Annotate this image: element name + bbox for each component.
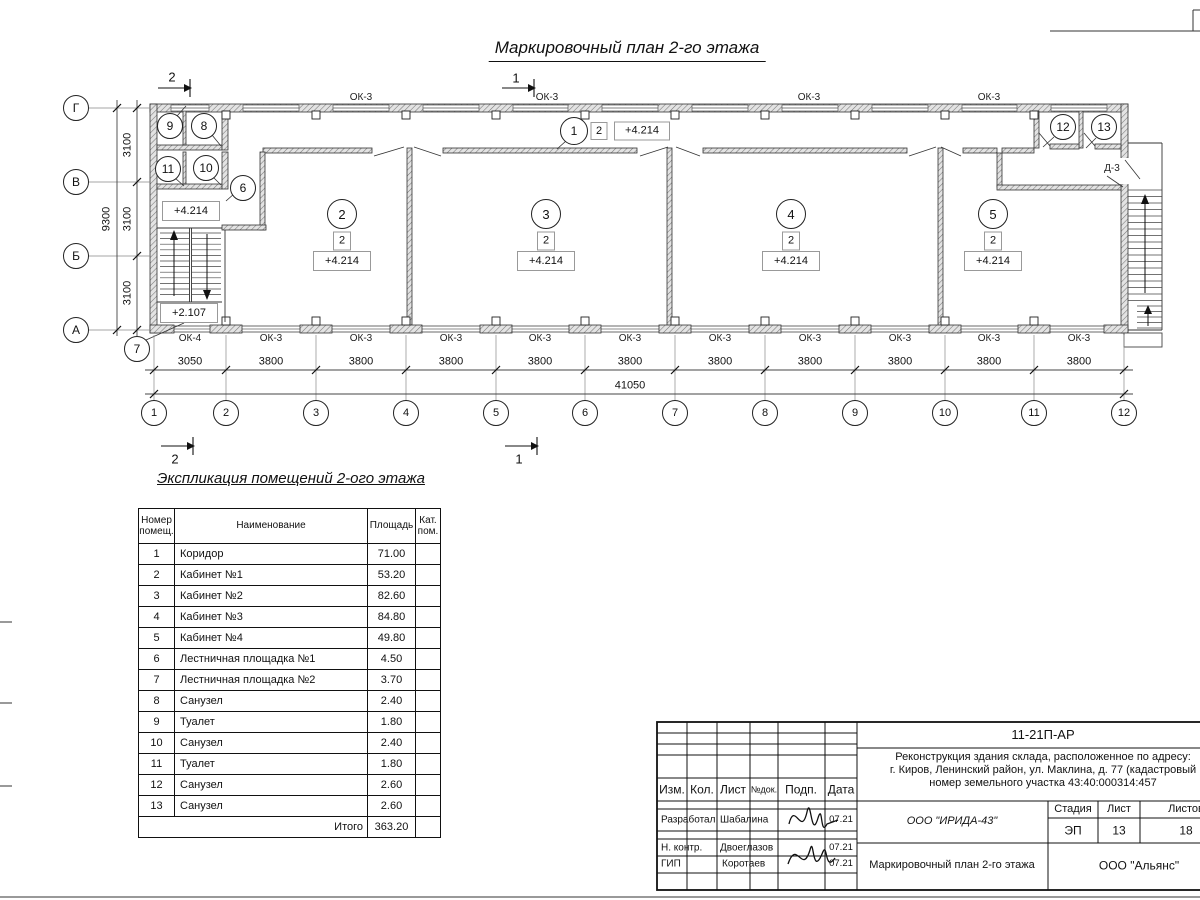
room-number-circle: 10 xyxy=(193,155,219,181)
schedule-heading: Экспликация помещений 2-ого этажа xyxy=(157,470,425,487)
window-label: ОК-3 xyxy=(619,334,642,344)
drawing-name: Маркировочный план 2-го этажа xyxy=(869,859,1034,873)
schedule-row: 7Лестничная площадка №23.70 xyxy=(139,670,441,691)
tb-col-ndok: №док. xyxy=(751,784,777,795)
room-area-cell: 4.50 xyxy=(368,649,416,670)
room-number-cell: 4 xyxy=(139,607,175,628)
room-category-cell xyxy=(416,544,441,565)
grid-row-bubble: Б xyxy=(63,243,89,269)
room-name-cell: Санузел xyxy=(175,775,368,796)
dimension-label: 3100 xyxy=(123,281,134,305)
section-mark-label: 1 xyxy=(515,453,522,466)
schedule-row: 10Санузел2.40 xyxy=(139,733,441,754)
elevation-box: +4.214 xyxy=(614,122,670,141)
dimension-label: 3800 xyxy=(349,357,373,368)
room-category-cell xyxy=(416,649,441,670)
stage-value: ЭП xyxy=(1064,824,1081,839)
room-number-cell: 9 xyxy=(139,712,175,733)
elevation-box: +2.107 xyxy=(160,303,218,323)
dimension-label: 3800 xyxy=(888,357,912,368)
schedule-row: 1Коридор71.00 xyxy=(139,544,441,565)
room-area-cell: 49.80 xyxy=(368,628,416,649)
window-label: ОК-3 xyxy=(889,334,912,344)
room-area-cell: 1.80 xyxy=(368,754,416,775)
room-number-cell: 5 xyxy=(139,628,175,649)
room-area-cell: 1.80 xyxy=(368,712,416,733)
room-area-cell: 2.40 xyxy=(368,733,416,754)
room-area-cell: 84.80 xyxy=(368,607,416,628)
room-number-cell: 3 xyxy=(139,586,175,607)
tb-col-podp: Подп. xyxy=(785,783,817,798)
room-number-cell: 1 xyxy=(139,544,175,565)
window-label: ОК-3 xyxy=(529,334,552,344)
room-number-cell: 7 xyxy=(139,670,175,691)
elevation-box: +4.214 xyxy=(964,251,1022,271)
design-company: ООО "ИРИДА-43" xyxy=(907,815,998,829)
schedule-row: 6Лестничная площадка №14.50 xyxy=(139,649,441,670)
room-name-cell: Лестничная площадка №2 xyxy=(175,670,368,691)
schedule-row: 4Кабинет №384.80 xyxy=(139,607,441,628)
room-type-box: 2 xyxy=(984,232,1002,251)
project-address-line1: Реконструкция здания склада, расположенн… xyxy=(895,751,1191,765)
grid-column-bubble: 7 xyxy=(662,400,688,426)
room-name-cell: Санузел xyxy=(175,691,368,712)
room-area-cell: 82.60 xyxy=(368,586,416,607)
room-name-cell: Санузел xyxy=(175,733,368,754)
room-area-cell: 3.70 xyxy=(368,670,416,691)
room-number-cell: 2 xyxy=(139,565,175,586)
grid-column-bubble: 12 xyxy=(1111,400,1137,426)
room-number-circle: 6 xyxy=(230,175,256,201)
window-label: ОК-3 xyxy=(978,334,1001,344)
dimension-label: 3800 xyxy=(1067,357,1091,368)
dimension-label: 3100 xyxy=(123,133,134,157)
room-category-cell xyxy=(416,733,441,754)
room-number-circle: 13 xyxy=(1091,114,1117,140)
schedule-row: 5Кабинет №449.80 xyxy=(139,628,441,649)
room-number-cell: 11 xyxy=(139,754,175,775)
grid-column-bubble: 1 xyxy=(141,400,167,426)
col-room-name: Наименование xyxy=(175,509,368,544)
role-ncontrol: Н. контр. xyxy=(661,843,702,854)
tb-col-list: Лист xyxy=(720,783,746,798)
window-label: ОК-3 xyxy=(260,334,283,344)
window-label: ОК-3 xyxy=(709,334,732,344)
grid-column-bubble: 6 xyxy=(572,400,598,426)
dimension-label: 3800 xyxy=(798,357,822,368)
schedule-row: 13Санузел2.60 xyxy=(139,796,441,817)
window-label: ОК-3 xyxy=(440,334,463,344)
room-number-cell: 10 xyxy=(139,733,175,754)
room-name-cell: Туалет xyxy=(175,712,368,733)
doc-number: 11-21П-АР xyxy=(1011,727,1074,743)
grid-column-bubble: 9 xyxy=(842,400,868,426)
room-number-circle: 8 xyxy=(191,113,217,139)
col-room-category: Кат. пом. xyxy=(416,509,441,544)
room-area-cell: 53.20 xyxy=(368,565,416,586)
room-category-cell xyxy=(416,565,441,586)
project-address-line2: г. Киров, Ленинский район, ул. Маклина, … xyxy=(890,764,1196,778)
role-ncontrol-name: Двоеглазов xyxy=(720,843,773,854)
elevation-box: +4.214 xyxy=(162,201,220,221)
tb-col-data: Дата xyxy=(828,783,855,798)
project-address-line3: номер земельного участка 43:40:000314:45… xyxy=(929,777,1157,791)
grid-row-bubble: А xyxy=(63,317,89,343)
role-developer: Разработал xyxy=(661,815,715,826)
room-number-circle: 12 xyxy=(1050,114,1076,140)
role-gip-name: Коротаев xyxy=(722,859,765,870)
dimension-label: 3100 xyxy=(123,207,134,231)
section-mark-label: 2 xyxy=(168,71,175,84)
role-gip: ГИП xyxy=(661,859,681,870)
room-name-cell: Лестничная площадка №1 xyxy=(175,649,368,670)
window-label: ОК-3 xyxy=(536,93,559,103)
room-area-cell: 2.60 xyxy=(368,775,416,796)
sheets-label: Листов xyxy=(1168,803,1200,817)
schedule-row: 11Туалет1.80 xyxy=(139,754,441,775)
dimension-label: 3800 xyxy=(439,357,463,368)
grid-column-bubble: 3 xyxy=(303,400,329,426)
schedule-body: 1Коридор71.00 2Кабинет №153.20 3Кабинет … xyxy=(139,544,441,817)
room-category-cell xyxy=(416,775,441,796)
dimension-total-label: 9300 xyxy=(102,207,113,231)
elevation-box: +4.214 xyxy=(313,251,371,271)
dimension-label: 3800 xyxy=(708,357,732,368)
col-room-number: Номер помещ. xyxy=(139,509,175,544)
sheet-label: Лист xyxy=(1107,803,1131,817)
window-label: ОК-3 xyxy=(978,93,1001,103)
grid-column-bubble: 4 xyxy=(393,400,419,426)
room-number-circle: 1 xyxy=(560,117,588,145)
col-room-area: Площадь xyxy=(368,509,416,544)
room-category-cell xyxy=(416,586,441,607)
window-label: ОК-3 xyxy=(1068,334,1091,344)
room-category-cell xyxy=(416,670,441,691)
room-name-cell: Санузел xyxy=(175,796,368,817)
room-name-cell: Кабинет №4 xyxy=(175,628,368,649)
room-category-cell xyxy=(416,691,441,712)
role-developer-date: 07.21 xyxy=(829,814,853,826)
section-mark-label: 2 xyxy=(171,453,178,466)
room-schedule-table: Номер помещ. Наименование Площадь Кат. п… xyxy=(138,508,441,838)
room-number-circle: 5 xyxy=(978,199,1008,229)
dimension-total-label: 41050 xyxy=(615,381,646,392)
dimension-label: 3800 xyxy=(977,357,1001,368)
signature xyxy=(788,846,835,864)
room-category-cell xyxy=(416,712,441,733)
elevation-box: +4.214 xyxy=(762,251,820,271)
room-area-cell: 2.60 xyxy=(368,796,416,817)
room-number-cell: 12 xyxy=(139,775,175,796)
schedule-row: 8Санузел2.40 xyxy=(139,691,441,712)
dimension-label: 3800 xyxy=(259,357,283,368)
role-developer-name: Шабалина xyxy=(720,815,768,826)
tb-col-kol: Кол. xyxy=(690,783,714,798)
role-ncontrol-date: 07.21 xyxy=(829,842,853,854)
dimension-label: 3800 xyxy=(528,357,552,368)
room-area-cell: 71.00 xyxy=(368,544,416,565)
window-label: ОК-3 xyxy=(799,334,822,344)
grid-column-bubble: 10 xyxy=(932,400,958,426)
contractor-company: ООО "Альянс" xyxy=(1099,859,1179,874)
schedule-row: 3Кабинет №282.60 xyxy=(139,586,441,607)
dimension-label: 3800 xyxy=(618,357,642,368)
schedule-total-row: Итого 363.20 xyxy=(139,817,441,838)
room-number-cell: 6 xyxy=(139,649,175,670)
room-area-cell: 2.40 xyxy=(368,691,416,712)
total-category-cell xyxy=(416,817,441,838)
drawing-sheet: Маркировочный план 2-го этажа Экспликаци… xyxy=(0,0,1200,900)
dimension-label: 3050 xyxy=(178,357,202,368)
grid-row-bubble: В xyxy=(63,169,89,195)
room-category-cell xyxy=(416,754,441,775)
room-number-circle: 11 xyxy=(155,156,181,182)
page-title: Маркировочный план 2-го этажа xyxy=(489,38,766,62)
room-type-box: 2 xyxy=(333,232,351,251)
total-value: 363.20 xyxy=(368,817,416,838)
tb-col-izm: Изм. xyxy=(659,783,685,798)
grid-column-bubble: 8 xyxy=(752,400,778,426)
stage-label: Стадия xyxy=(1054,803,1092,817)
grid-column-bubble: 5 xyxy=(483,400,509,426)
total-label: Итого xyxy=(139,817,368,838)
room-number-cell: 13 xyxy=(139,796,175,817)
grid-row-bubble: Г xyxy=(63,95,89,121)
room-name-cell: Коридор xyxy=(175,544,368,565)
room-category-cell xyxy=(416,796,441,817)
sheet-value: 13 xyxy=(1112,824,1125,839)
schedule-row: 12Санузел2.60 xyxy=(139,775,441,796)
room-number-cell: 8 xyxy=(139,691,175,712)
window-label: ОК-3 xyxy=(350,93,373,103)
room-number-circle: 4 xyxy=(776,199,806,229)
schedule-header-row: Номер помещ. Наименование Площадь Кат. п… xyxy=(139,509,441,544)
window-label: ОК-3 xyxy=(798,93,821,103)
sheets-value: 18 xyxy=(1179,824,1192,839)
room-name-cell: Туалет xyxy=(175,754,368,775)
room-number-circle: 7 xyxy=(124,336,150,362)
room-number-circle: 2 xyxy=(327,199,357,229)
window-label: ОК-3 xyxy=(350,334,373,344)
room-category-cell xyxy=(416,607,441,628)
room-number-circle: 9 xyxy=(157,113,183,139)
room-type-box: 2 xyxy=(782,232,800,251)
elevation-box: +4.214 xyxy=(517,251,575,271)
role-gip-date: 07.21 xyxy=(829,858,853,870)
room-category-cell xyxy=(416,628,441,649)
window-label: ОК-4 xyxy=(179,334,202,344)
room-type-box: 2 xyxy=(591,122,608,140)
room-number-circle: 3 xyxy=(531,199,561,229)
door-label: Д-3 xyxy=(1104,164,1120,174)
schedule-row: 9Туалет1.80 xyxy=(139,712,441,733)
schedule-row: 2Кабинет №153.20 xyxy=(139,565,441,586)
room-name-cell: Кабинет №2 xyxy=(175,586,368,607)
grid-column-bubble: 2 xyxy=(213,400,239,426)
section-mark-label: 1 xyxy=(512,72,519,85)
room-name-cell: Кабинет №3 xyxy=(175,607,368,628)
room-type-box: 2 xyxy=(537,232,555,251)
room-name-cell: Кабинет №1 xyxy=(175,565,368,586)
grid-column-bubble: 11 xyxy=(1021,400,1047,426)
